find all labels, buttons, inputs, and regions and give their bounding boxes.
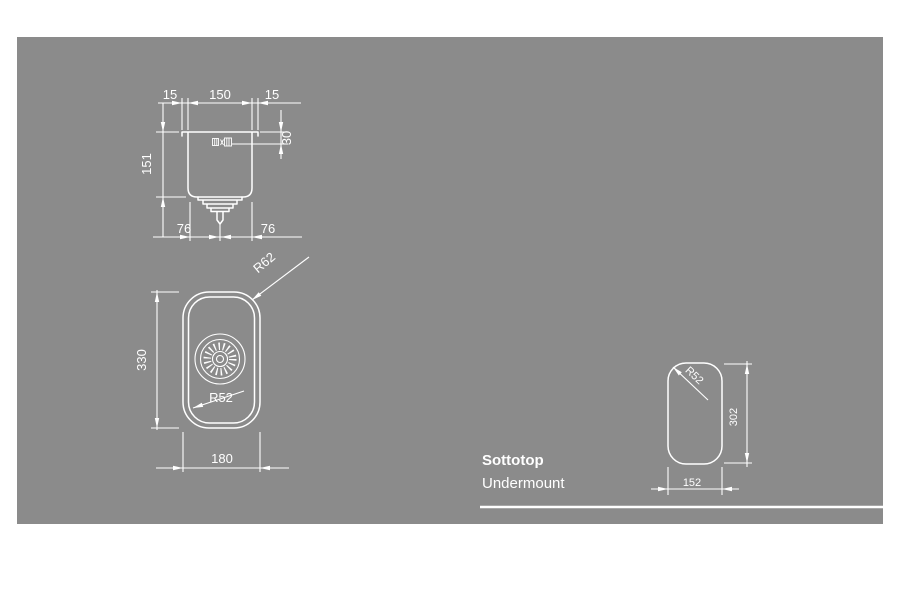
sink-technical-drawing: 15 150 15 151 30 76 76	[0, 0, 920, 614]
dim-label-basin-width: 150	[209, 87, 231, 102]
caption-title: Sottotop	[482, 452, 544, 469]
dim-label-length: 330	[134, 349, 149, 371]
dim-label-overflow: 30	[279, 131, 294, 145]
page: 15 150 15 151 30 76 76	[0, 0, 920, 614]
drawing-panel	[17, 37, 883, 524]
cutout-width-label: 152	[683, 477, 701, 489]
cutout-length-label: 302	[728, 408, 740, 426]
radius-inner-label: R52	[209, 390, 233, 405]
dim-label-drain-right: 76	[261, 221, 275, 236]
dim-label-rim-left: 15	[163, 87, 177, 102]
dim-label-depth: 151	[139, 153, 154, 175]
caption-subtitle: Undermount	[482, 475, 565, 492]
dim-label-rim-right: 15	[265, 87, 279, 102]
dim-label-drain-left: 76	[177, 221, 191, 236]
dim-label-width: 180	[211, 451, 233, 466]
